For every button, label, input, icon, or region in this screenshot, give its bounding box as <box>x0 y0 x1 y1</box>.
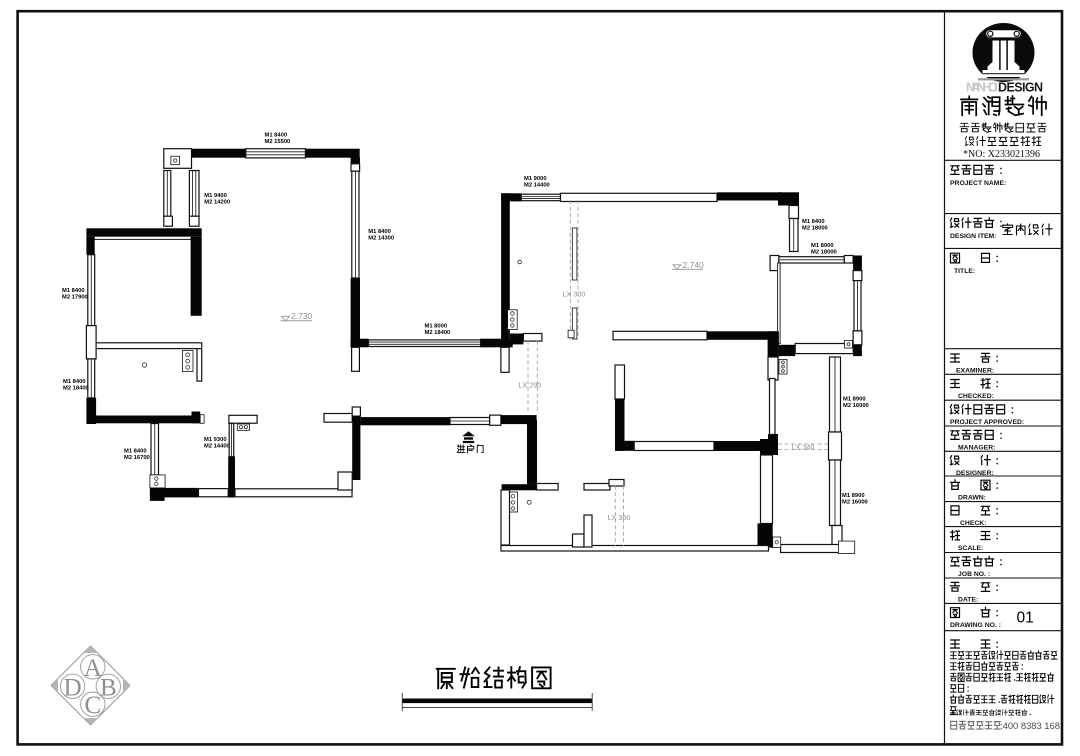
svg-text:CHECK:: CHECK: <box>960 520 986 527</box>
svg-text:DESIGNER:: DESIGNER: <box>956 470 994 477</box>
svg-text:M2 18000: M2 18000 <box>802 225 828 231</box>
svg-text:M1 9400: M1 9400 <box>204 193 227 199</box>
svg-text:LX 290: LX 290 <box>519 381 542 390</box>
svg-text:M2 14400: M2 14400 <box>204 443 230 449</box>
svg-text:DESIGN: DESIGN <box>998 81 1043 95</box>
svg-text:M1 8900: M1 8900 <box>842 493 865 499</box>
svg-text:M1 9300: M1 9300 <box>204 437 227 443</box>
svg-text:M1 8900: M1 8900 <box>843 397 866 403</box>
svg-text:M1 8400: M1 8400 <box>802 219 825 225</box>
svg-text:2.740: 2.740 <box>683 260 705 270</box>
svg-text:LX 360: LX 360 <box>608 513 631 522</box>
svg-text:DESIGN ITEM:: DESIGN ITEM: <box>950 233 996 240</box>
svg-text:D: D <box>64 674 82 701</box>
svg-text::400 8383 168: :400 8383 168 <box>1000 720 1060 731</box>
svg-text:LX 340: LX 340 <box>792 442 815 451</box>
svg-text:LX 300: LX 300 <box>563 290 586 299</box>
svg-text:M1 8400: M1 8400 <box>63 379 86 385</box>
svg-text:M2 16000: M2 16000 <box>843 403 869 409</box>
svg-text:*NO: X233021396: *NO: X233021396 <box>963 149 1040 160</box>
svg-text:M1 8000: M1 8000 <box>425 324 448 330</box>
svg-text:M1 9000: M1 9000 <box>524 176 547 182</box>
svg-text:M2 15500: M2 15500 <box>265 139 291 145</box>
svg-text:M2 16700: M2 16700 <box>124 455 150 461</box>
svg-text:M1 8400: M1 8400 <box>124 449 147 455</box>
svg-text:M1 8400: M1 8400 <box>62 288 85 294</box>
svg-text:M2 14300: M2 14300 <box>368 235 394 241</box>
svg-text:CHECKED:: CHECKED: <box>958 393 994 400</box>
svg-text:DATE:: DATE: <box>958 597 978 604</box>
svg-text:M2 18400: M2 18400 <box>425 330 451 336</box>
svg-text:PROJECT NAME:: PROJECT NAME: <box>950 180 1006 187</box>
svg-text:EXAMINER:: EXAMINER: <box>956 368 994 375</box>
svg-text:M2 18400: M2 18400 <box>63 385 89 391</box>
svg-text:DRAWN:: DRAWN: <box>958 495 986 502</box>
svg-text:M2 16000: M2 16000 <box>842 499 868 505</box>
svg-text:01: 01 <box>1017 610 1034 627</box>
svg-text:M2 18000: M2 18000 <box>811 249 837 255</box>
svg-text:C: C <box>84 692 101 719</box>
svg-text:M1 8400: M1 8400 <box>368 229 391 235</box>
svg-text:M2 14200: M2 14200 <box>204 199 230 205</box>
svg-text:2.730: 2.730 <box>291 311 313 321</box>
svg-text:MANAGER:: MANAGER: <box>958 445 995 452</box>
svg-text:M1 8900: M1 8900 <box>811 243 834 249</box>
svg-text:PROJECT APPROVED:: PROJECT APPROVED: <box>950 419 1024 426</box>
svg-text:NANHOI: NANHOI <box>966 81 998 95</box>
svg-text:JOB NO. :: JOB NO. : <box>958 571 990 578</box>
svg-text:SCALE:: SCALE: <box>958 545 983 552</box>
svg-text:M2 14400: M2 14400 <box>524 182 550 188</box>
svg-text:DRAWING NO. :: DRAWING NO. : <box>950 622 1001 629</box>
svg-text:TITLE:: TITLE: <box>954 268 975 275</box>
svg-text:M2 17900: M2 17900 <box>62 294 88 300</box>
svg-text:M1 8400: M1 8400 <box>265 133 288 139</box>
